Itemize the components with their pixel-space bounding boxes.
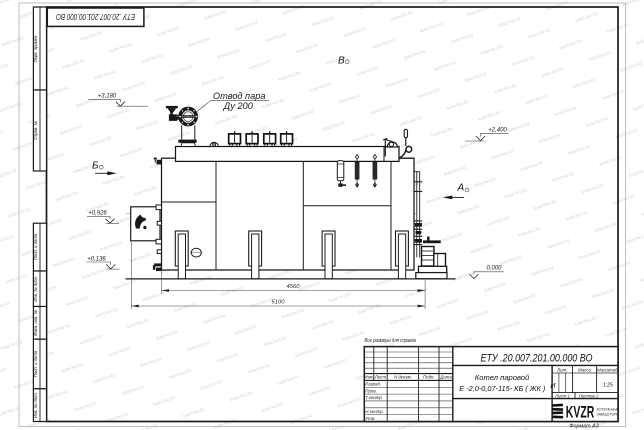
svg-text:N докум.: N докум. — [394, 375, 412, 380]
svg-text:Дата: Дата — [439, 375, 452, 380]
svg-text:+3,180: +3,180 — [98, 93, 117, 99]
svg-text:KVZR: KVZR — [566, 404, 595, 422]
svg-text:Перв. примен.: Перв. примен. — [33, 35, 38, 63]
svg-text:В: В — [338, 55, 345, 66]
svg-text:Ду 200: Ду 200 — [223, 101, 253, 111]
svg-text:0,000: 0,000 — [486, 265, 502, 271]
svg-text:Отвод пара: Отвод пара — [213, 91, 266, 101]
svg-text:ЕТУ .20.007.201.00.000 ВО: ЕТУ .20.007.201.00.000 ВО — [481, 352, 593, 364]
svg-text:Б: Б — [92, 161, 99, 172]
svg-text:Изм.: Изм. — [364, 375, 373, 380]
svg-text:Инв. № дубл.: Инв. № дубл. — [33, 276, 38, 302]
svg-text:Пров.: Пров. — [365, 388, 377, 393]
svg-text:+0,136: +0,136 — [87, 256, 106, 262]
svg-text:Масса: Масса — [578, 367, 592, 372]
svg-text:Взам. инв. №: Взам. инв. № — [33, 309, 38, 335]
svg-text:Лист 1: Лист 1 — [554, 394, 571, 399]
svg-text:Формат А3: Формат А3 — [569, 424, 599, 430]
svg-text:Справ. №: Справ. № — [33, 121, 38, 140]
svg-text:Разраб.: Разраб. — [365, 382, 381, 387]
svg-text:Котел паровой: Котел паровой — [475, 373, 530, 382]
svg-text:Лист: Лист — [374, 375, 387, 380]
svg-text:Лит.: Лит. — [556, 367, 567, 372]
svg-text:Т.контр.: Т.контр. — [365, 395, 383, 400]
svg-text:Все размеры для справок: Все размеры для справок — [365, 338, 417, 344]
svg-text:А: А — [456, 183, 464, 194]
svg-text:Е -2,0-0,07-115- КБ ( ЖК ): Е -2,0-0,07-115- КБ ( ЖК ) — [459, 384, 545, 393]
svg-text:Масштаб: Масштаб — [597, 367, 618, 372]
svg-text:Инв. № подл.: Инв. № подл. — [33, 392, 38, 418]
svg-text:1:25: 1:25 — [603, 382, 613, 388]
svg-text:Листов 2: Листов 2 — [578, 394, 599, 399]
svg-text:Подп. и дата: Подп. и дата — [33, 350, 38, 377]
svg-text:ЕТУ .20.007.201.00.000 ВО: ЕТУ .20.007.201.00.000 ВО — [56, 12, 135, 21]
svg-text:ЗАВОД РЭП: ЗАВОД РЭП — [597, 412, 618, 416]
svg-text:КОТЕЛЬНЫЙ: КОТЕЛЬНЫЙ — [597, 408, 620, 412]
svg-text:+2,400: +2,400 — [488, 127, 507, 133]
svg-text:Утв.: Утв. — [365, 416, 375, 421]
svg-text:Подп. и дата: Подп. и дата — [33, 233, 38, 260]
svg-text:Подп.: Подп. — [423, 375, 435, 380]
svg-text:4560: 4560 — [287, 284, 301, 290]
svg-text:+0,926: +0,926 — [88, 211, 107, 217]
svg-text:5100: 5100 — [272, 299, 286, 305]
svg-text:Н.контр.: Н.контр. — [365, 409, 384, 414]
